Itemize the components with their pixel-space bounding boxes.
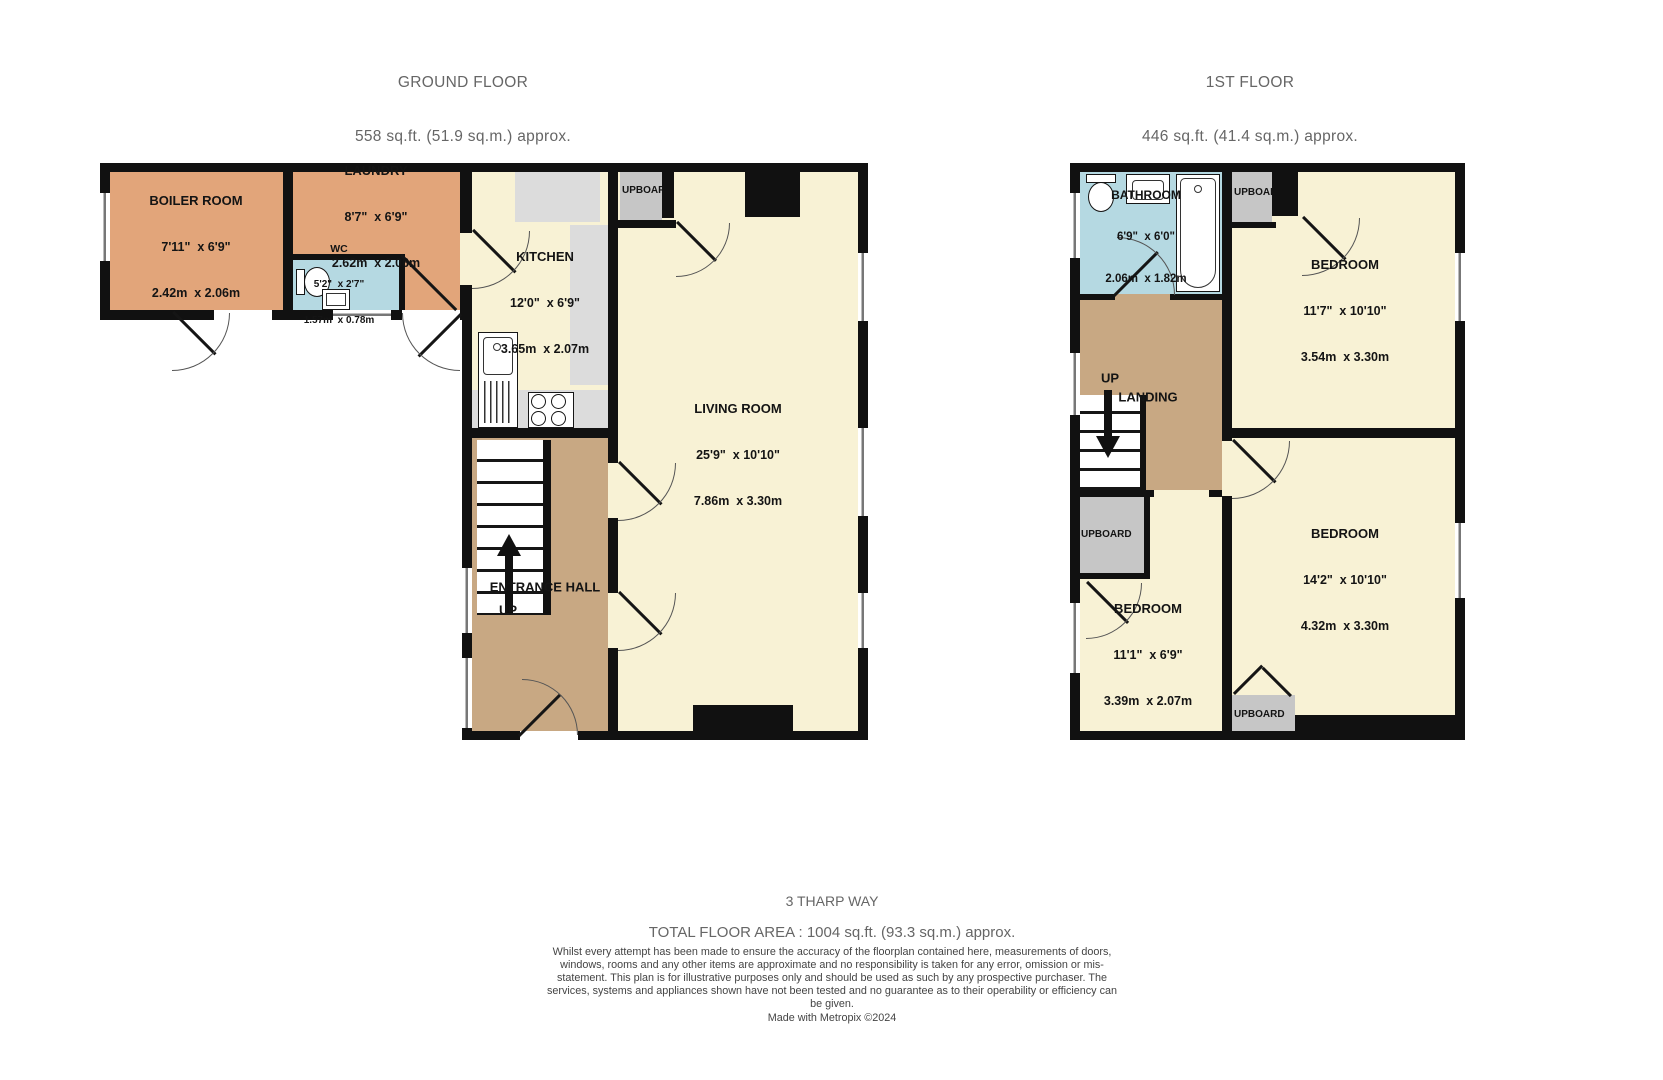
room-label-living: LIVING ROOM 25'9" x 10'10" 7.86m x 3.30m (694, 370, 782, 541)
room-label-kitchen: KITCHEN 12'0" x 6'9" 3.65m x 2.07m (501, 218, 589, 389)
bath-tap-icon (1194, 185, 1202, 193)
stove-burner-icon (531, 411, 546, 426)
room-dims-metric: 3.39m x 2.07m (1104, 694, 1192, 710)
total-floor-area: TOTAL FLOOR AREA : 1004 sq.ft. (93.3 sq.… (649, 924, 1016, 941)
window (1455, 523, 1465, 598)
window (462, 568, 472, 633)
property-address: 3 THARP WAY (786, 893, 879, 909)
room-label-wc: WC 5'2" x 2'7" 1.57m x 0.78m (304, 219, 375, 351)
room-name: BOILER ROOM (149, 193, 242, 209)
room-name: WC (304, 243, 375, 255)
first-floor-plan: UPBOARD UPBOARD UPBOARD BATHROOM 6'9" x … (1070, 163, 1465, 740)
window (1070, 603, 1080, 673)
window (1070, 353, 1080, 415)
room-label-bedroom-right: BEDROOM 14'2" x 10'10" 4.32m x 3.30m (1301, 495, 1389, 666)
room-label-entrance-hall: ENTRANCE HALL (490, 580, 601, 595)
room-label-bedroom-left: BEDROOM 11'1" x 6'9" 3.39m x 2.07m (1104, 570, 1192, 741)
kitchen-counter-top (515, 172, 600, 222)
room-dims-imperial: 6'9" x 6'0" (1105, 230, 1186, 244)
stove-burner-icon (531, 394, 546, 409)
stairs-down-arrow-icon (1104, 390, 1112, 438)
wall-segment (1144, 497, 1150, 579)
door-gap (1222, 441, 1232, 496)
wall-segment (745, 172, 800, 217)
stairs-down-arrow-icon (1096, 436, 1120, 458)
room-dims-metric: 4.32m x 3.30m (1301, 619, 1389, 635)
room-dims-metric: 3.54m x 3.30m (1301, 350, 1389, 366)
wall-segment (662, 172, 674, 218)
room-name: BATHROOM (1105, 188, 1186, 202)
ground-floor-title-name: GROUND FLOOR (355, 74, 571, 92)
window (858, 593, 868, 648)
room-label-boiler: BOILER ROOM 7'11" x 6'9" 2.42m x 2.06m (149, 162, 242, 333)
room-dims-metric: 2.42m x 2.06m (149, 286, 242, 302)
room-name: LIVING ROOM (694, 401, 782, 417)
window (100, 193, 110, 261)
stove-burner-icon (551, 394, 566, 409)
window (1455, 253, 1465, 321)
first-cupboard-left-label: UPBOARD (1081, 529, 1145, 540)
room-dims-imperial: 12'0" x 6'9" (501, 295, 589, 311)
room-dims-imperial: 25'9" x 10'10" (694, 447, 782, 463)
door-gap (460, 233, 472, 285)
door-gap (1154, 490, 1209, 497)
window (858, 428, 868, 516)
wall-segment (1295, 715, 1455, 731)
room-dims-imperial: 11'1" x 6'9" (1104, 647, 1192, 663)
room-dims-metric: 3.65m x 2.07m (501, 342, 589, 358)
kitchen-tap-icon (493, 343, 501, 351)
ground-cupboard (620, 172, 662, 220)
door-gap (608, 463, 618, 518)
room-name: BEDROOM (1104, 601, 1192, 617)
stairs-side-wall (1140, 395, 1146, 490)
metropix-credit: Made with Metropix ©2024 (768, 1012, 897, 1024)
window (462, 658, 472, 728)
disclaimer-text: Whilst every attempt has been made to en… (545, 946, 1120, 1011)
door-gap (608, 593, 618, 648)
wall-segment (1230, 222, 1276, 228)
chimney-breast (693, 705, 793, 731)
first-floor-title: 1ST FLOOR 446 sq.ft. (41.4 sq.m.) approx… (1142, 38, 1358, 164)
room-dims-imperial: 14'2" x 10'10" (1301, 572, 1389, 588)
door-arc (402, 313, 460, 371)
room-label-bathroom: BATHROOM 6'9" x 6'0" 2.06m x 1.82m (1105, 160, 1186, 314)
room-label-bedroom-top: BEDROOM 11'7" x 10'10" 3.54m x 3.30m (1301, 226, 1389, 397)
window (1070, 193, 1080, 258)
wall-segment (618, 220, 676, 228)
stairs-up-arrow-icon (497, 534, 521, 556)
room-dims-imperial: 5'2" x 2'7" (304, 279, 375, 291)
room-dims-metric: 2.06m x 1.82m (1105, 272, 1186, 286)
ground-floor-plan: UPBOARD BOILER ROOM 7'11" x 6'9" 2.42m x… (100, 163, 868, 740)
floorplan-page: { "titles": { "ground": {"line1": "GROUN… (0, 0, 1663, 1080)
room-name: BEDROOM (1301, 526, 1389, 542)
ground-up-label: UP (499, 603, 517, 618)
room-dims-metric: 7.86m x 3.30m (694, 494, 782, 510)
first-floor-title-name: 1ST FLOOR (1142, 74, 1358, 92)
stove-burner-icon (551, 411, 566, 426)
room-name: BEDROOM (1301, 257, 1389, 273)
first-up-label: UP (1101, 371, 1119, 386)
room-dims-metric: 1.57m x 0.78m (304, 315, 375, 327)
room-dims-imperial: 7'11" x 6'9" (149, 239, 242, 255)
room-dims-imperial: 11'7" x 10'10" (1301, 303, 1389, 319)
first-cupboard-bottom-label: UPBOARD (1234, 709, 1294, 720)
room-name: LAUNDRY (332, 163, 420, 179)
wall-segment (1272, 172, 1298, 216)
window (858, 253, 868, 321)
room-label-landing: LANDING (1118, 390, 1177, 405)
room-name: KITCHEN (501, 249, 589, 265)
first-floor-title-area: 446 sq.ft. (41.4 sq.m.) approx. (1142, 128, 1358, 146)
